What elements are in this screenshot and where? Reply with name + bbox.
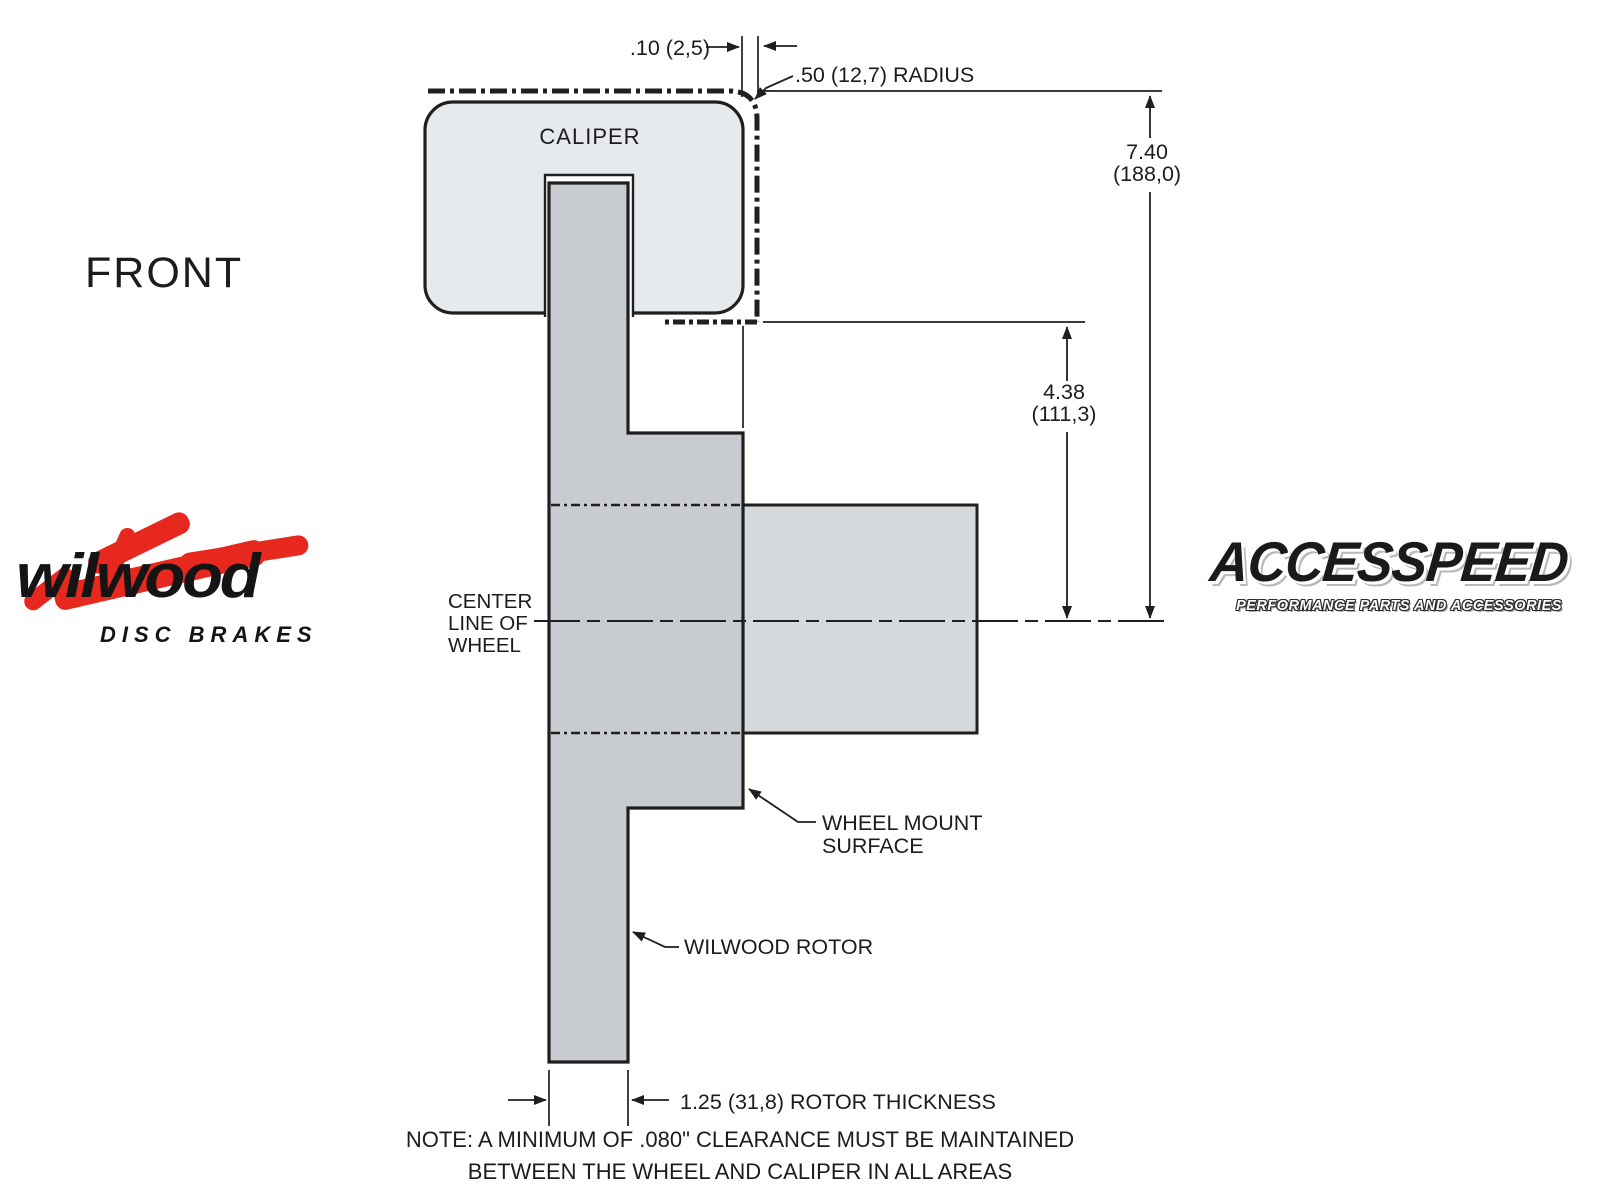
centerline-label-1: CENTER <box>448 590 532 613</box>
wheel-mount-label-2: SURFACE <box>822 834 924 858</box>
dim-caliper-radius-mm: (111,3) <box>1032 402 1097 426</box>
dim-thickness-text: 1.25 (31,8) ROTOR THICKNESS <box>680 1090 996 1114</box>
rotor-leader <box>633 932 679 947</box>
dim-wheel-radius-mm: (188,0) <box>1113 162 1181 186</box>
accesspeed-logo: ACCESSPEED PERFORMANCE PARTS AND ACCESSO… <box>1204 530 1594 614</box>
radius-leader <box>755 76 793 99</box>
dim-clearance-text: .10 (2,5) <box>630 36 710 60</box>
wilwood-wordmark: wilwood <box>16 546 257 608</box>
dim-caliper-radius-in: 4.38 <box>1043 380 1085 404</box>
accesspeed-wordmark: ACCESSPEED <box>1201 530 1578 594</box>
rotor-callout-label: WILWOOD ROTOR <box>684 935 873 959</box>
note-line-2: BETWEEN THE WHEEL AND CALIPER IN ALL ARE… <box>468 1159 1012 1184</box>
caliper-label: CALIPER <box>539 124 640 149</box>
wilwood-tagline: DISC BRAKES <box>100 622 318 648</box>
centerline-label-3: WHEEL <box>448 634 521 657</box>
accesspeed-tagline: PERFORMANCE PARTS AND ACCESSORIES <box>1204 598 1594 614</box>
dim-radius-text: .50 (12,7) RADIUS <box>795 63 974 87</box>
wilwood-logo: wilwood DISC BRAKES <box>14 518 334 663</box>
wheel-mount-leader <box>749 789 816 822</box>
wheel-mount-label-1: WHEEL MOUNT <box>822 811 982 835</box>
note-line-1: NOTE: A MINIMUM OF .080" CLEARANCE MUST … <box>406 1127 1074 1152</box>
view-label: FRONT <box>85 249 243 297</box>
hub-section <box>743 505 977 733</box>
centerline-label-2: LINE OF <box>448 612 528 635</box>
brake-dimension-diagram: FRONT CALIPER .10 (2,5) .50 (12,7) RADIU… <box>0 0 1600 1200</box>
rotor-section <box>549 183 743 1062</box>
dim-wheel-radius-in: 7.40 <box>1126 140 1168 164</box>
